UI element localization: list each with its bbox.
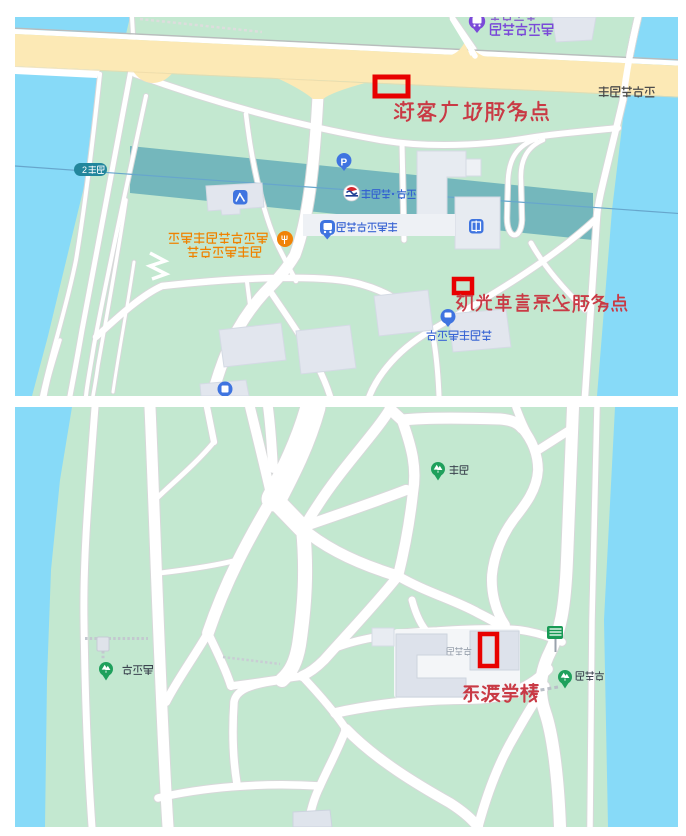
svg-text:2: 2 [82,165,87,175]
svg-text:P: P [341,158,348,169]
